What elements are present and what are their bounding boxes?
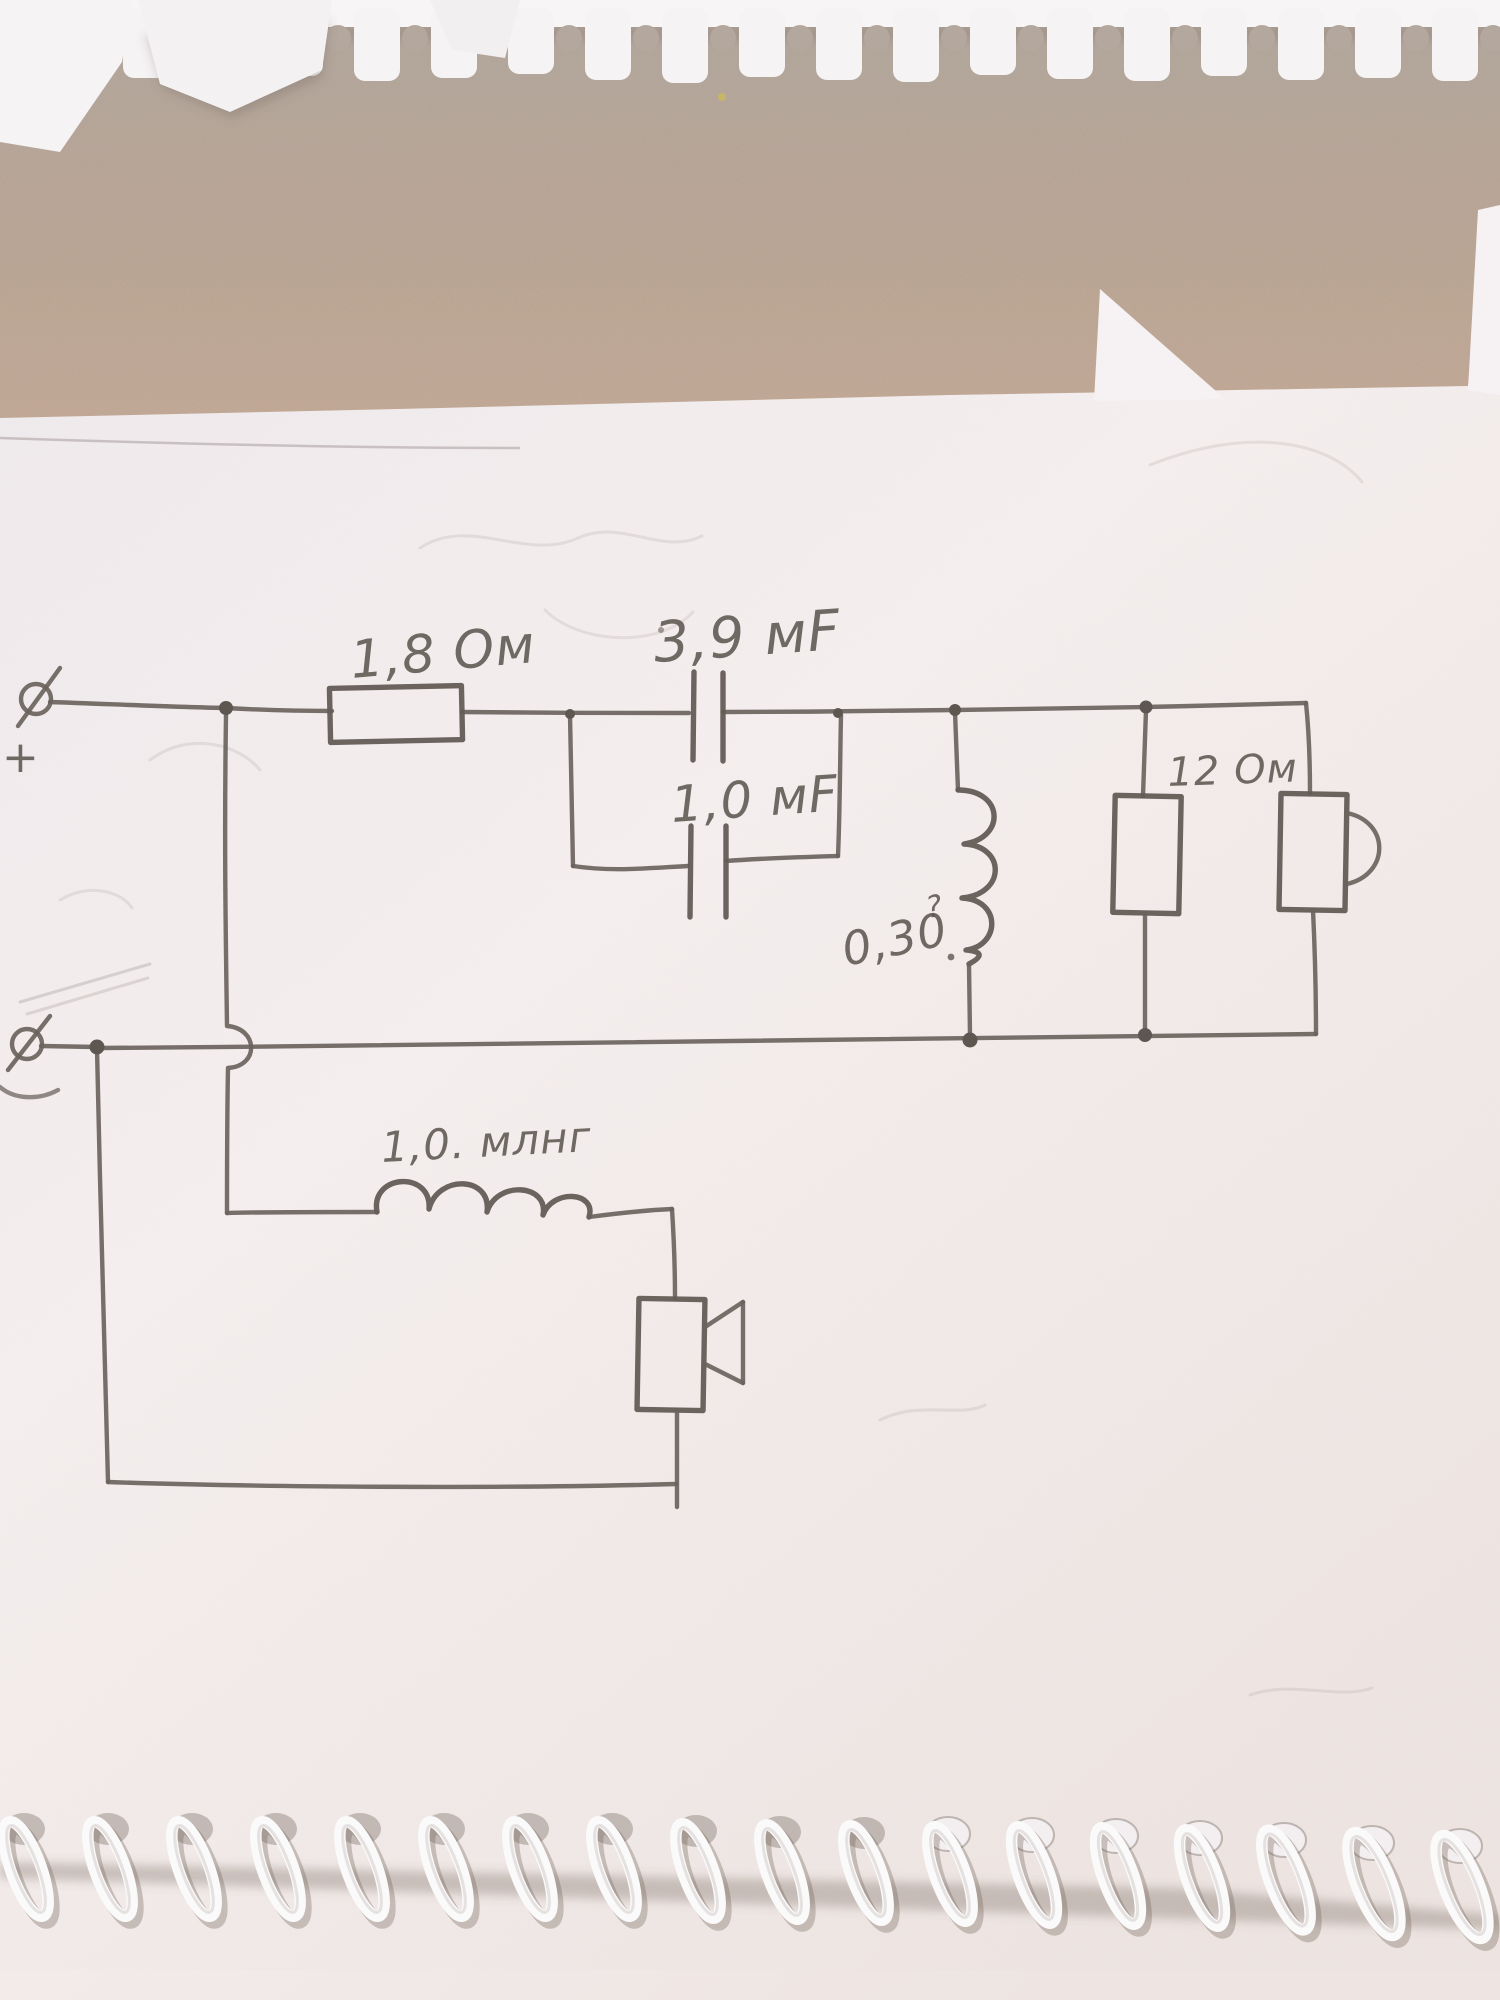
capacitor-a-label: 3,9 мF	[651, 598, 842, 676]
terminal-lead-wire	[41, 1046, 97, 1047]
notebook-page	[0, 210, 1500, 2000]
photo-canvas: + 1,8 Ом 3,9 мF	[0, 0, 1500, 2000]
notebook-photo: + 1,8 Ом 3,9 мF	[0, 0, 1500, 2000]
capacitor-b-label: 1,0 мF	[669, 764, 841, 834]
dust-speck	[718, 93, 726, 101]
plus-terminal-label: +	[2, 732, 40, 783]
label-period-dot	[948, 954, 955, 961]
shunt-resistor-label: 12 Ом	[1167, 745, 1299, 796]
